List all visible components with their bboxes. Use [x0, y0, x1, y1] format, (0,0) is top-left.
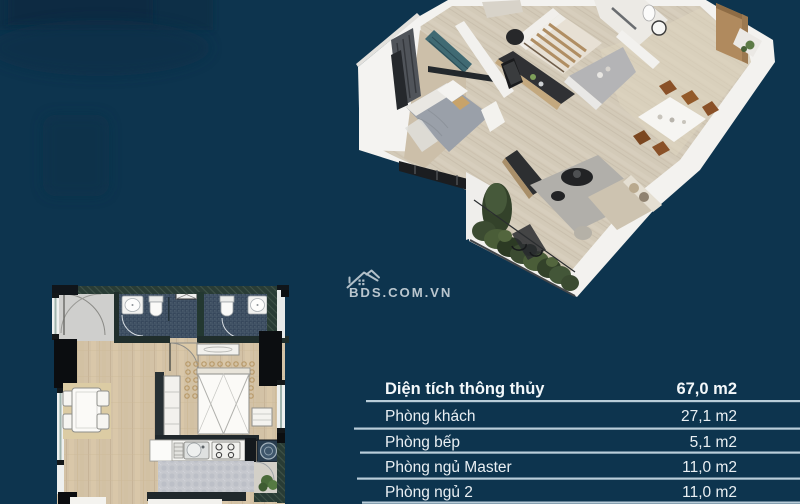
svg-text:Phòng ngủ Master: Phòng ngủ Master	[385, 459, 512, 476]
svg-text:Diện tích thông thủy: Diện tích thông thủy	[385, 380, 545, 398]
svg-text:Phòng khách: Phòng khách	[385, 408, 476, 425]
svg-text:Phòng ngủ 2: Phòng ngủ 2	[385, 484, 473, 501]
svg-text:BDS.COM.VN: BDS.COM.VN	[349, 285, 452, 300]
svg-text:67,0 m2: 67,0 m2	[676, 380, 737, 398]
svg-text:11,0 m2: 11,0 m2	[682, 484, 737, 501]
svg-text:Phòng bếp: Phòng bếp	[385, 434, 460, 451]
svg-text:5,1 m2: 5,1 m2	[690, 434, 737, 451]
svg-text:11,0 m2: 11,0 m2	[682, 459, 737, 476]
svg-text:27,1 m2: 27,1 m2	[681, 408, 737, 425]
